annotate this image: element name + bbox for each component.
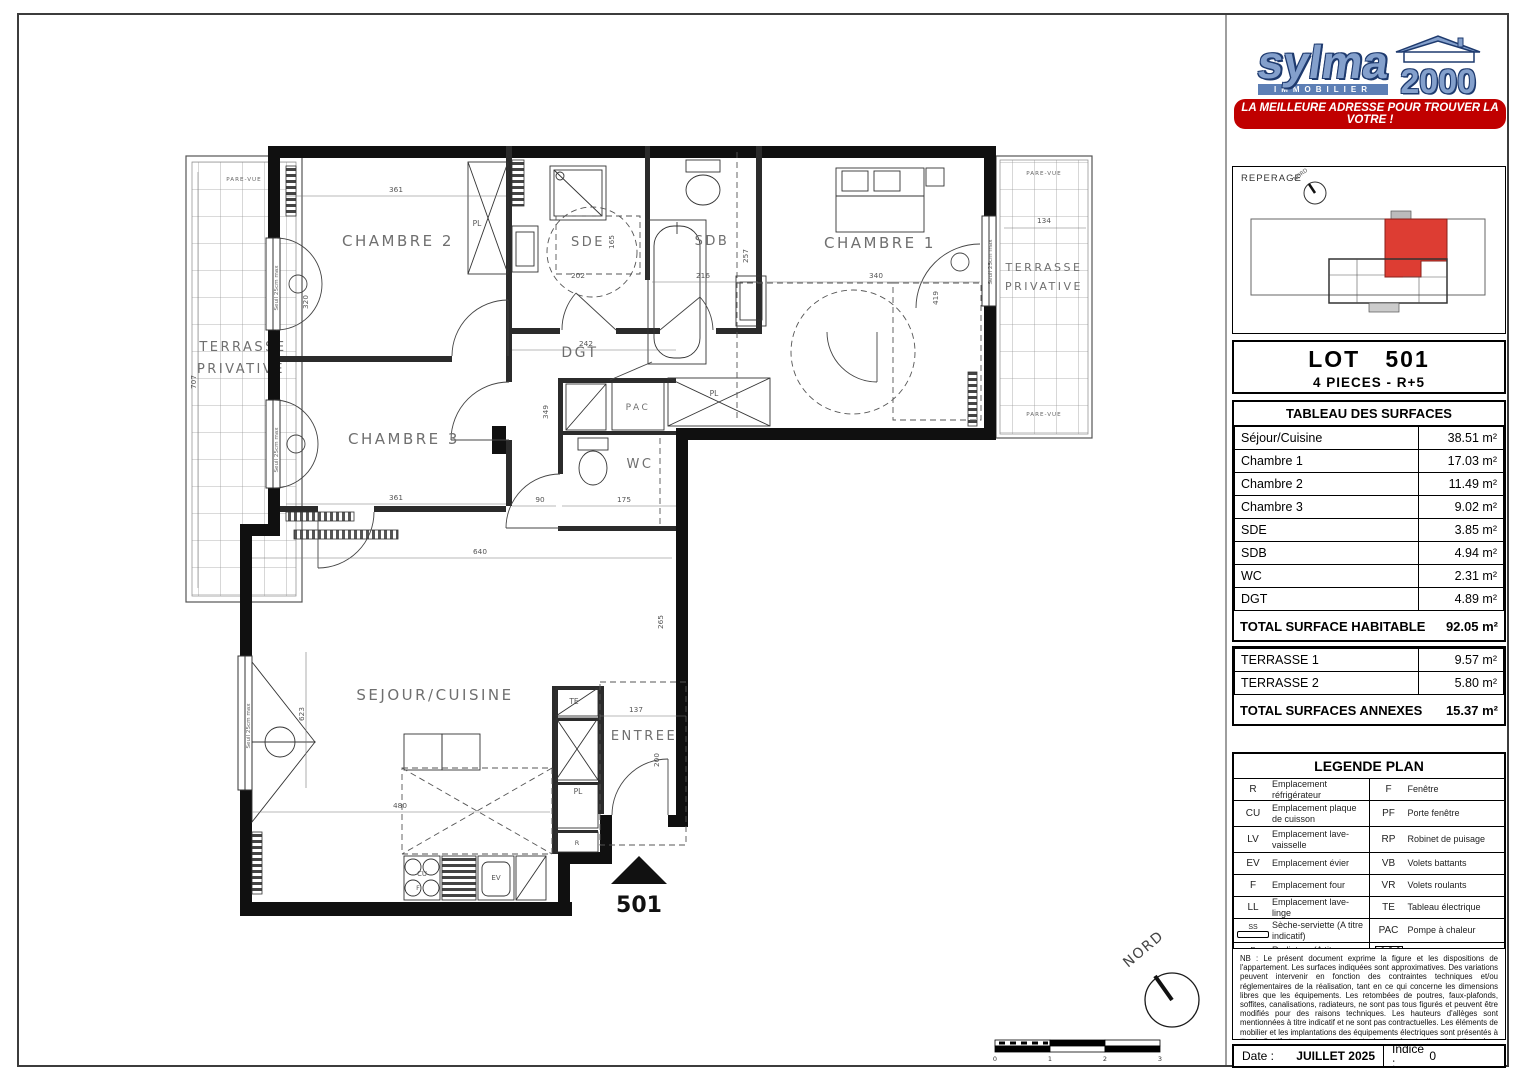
room-labels: CHAMBRE 2 SDE SDB CHAMBRE 1 CHAMBRE 3 DG…	[342, 232, 936, 744]
lot-number-marker: 501	[616, 893, 662, 918]
table-row: SDB4.94 m²	[1235, 542, 1504, 565]
fixture-labels: PL PL PL TE R CU F EV	[416, 219, 719, 892]
pl-label: PL	[473, 219, 483, 228]
table-row: Chambre 211.49 m²	[1235, 473, 1504, 496]
legend-item: SS Sèche-serviette (A titre indicatif)	[1234, 919, 1369, 943]
legend-item: VBVolets battants	[1370, 853, 1505, 875]
logo-tagline: LA MEILLEURE ADRESSE POUR TROUVER LA VOT…	[1234, 99, 1506, 129]
dim: 640	[473, 547, 487, 556]
north-compass: NORD	[1120, 928, 1199, 1027]
logo-name: sylma	[1255, 43, 1391, 81]
pare-vue-label: PARE-VUE	[1026, 171, 1061, 177]
dim: 216	[696, 271, 710, 280]
indice-label: Indice :	[1392, 1042, 1429, 1070]
surfaces-table-box: TABLEAU DES SURFACES Séjour/Cuisine38.51…	[1232, 400, 1506, 642]
nb-note-text: NB : Le présent document exprime la figu…	[1233, 949, 1505, 1040]
date-value: JUILLET 2025	[1296, 1049, 1375, 1063]
scale-tick: 2	[1103, 1055, 1107, 1063]
legend-item: RPRobinet de puisage	[1370, 827, 1505, 853]
dim: 340	[869, 271, 883, 280]
table-row: Chambre 117.03 m²	[1235, 450, 1504, 473]
seuil-notes: Seuil 25cm max Seuil 25cm max Seuil 25cm…	[246, 239, 994, 749]
house-icon	[1394, 34, 1482, 64]
room-label-pac: PAC	[626, 403, 651, 413]
dim: 361	[389, 493, 403, 502]
pl-label: PL	[710, 389, 720, 398]
legend-right-column: FFenêtre PFPorte fenêtre RPRobinet de pu…	[1370, 779, 1505, 967]
room-label-sdb: SDB	[695, 234, 730, 249]
seuil-note: Seuil 25cm max	[274, 265, 280, 311]
terrace-right-label-2: PRIVATIVE	[1005, 280, 1083, 293]
cu-label: CU	[417, 870, 427, 878]
north-label: NORD	[1120, 928, 1167, 971]
legend-item: CUEmplacement plaque de cuisson	[1234, 801, 1369, 827]
dim: 349	[541, 405, 550, 419]
pl-label: PL	[574, 787, 584, 796]
lot-box: LOT 501 4 PIECES - R+5	[1232, 340, 1506, 394]
legend-item: EVEmplacement évier	[1234, 853, 1369, 875]
table-row: TERRASSE 19.57 m²	[1235, 649, 1504, 672]
legend-item: FFenêtre	[1370, 779, 1505, 801]
room-label-chambre3: CHAMBRE 3	[348, 430, 460, 448]
logo-year: 2000	[1394, 69, 1482, 95]
pare-vue-label: PARE-VUE	[226, 177, 261, 183]
interior-walls	[280, 146, 762, 854]
scale-tick: 1	[1048, 1055, 1052, 1063]
legend-item: VRVolets roulants	[1370, 875, 1505, 897]
lot-entrance-marker: 501	[611, 856, 667, 918]
indice-cell: Indice : 0	[1384, 1046, 1504, 1066]
legend-box: LEGENDE PLAN REmplacement réfrigérateur …	[1232, 752, 1506, 969]
date-cell: Date : JUILLET 2025	[1234, 1046, 1384, 1066]
dim: 242	[579, 339, 593, 348]
total-habitable-row: TOTAL SURFACE HABITABLE 92.05 m²	[1234, 611, 1504, 640]
dim: 175	[617, 495, 631, 504]
seuil-note: Seuil 25cm max	[274, 427, 280, 473]
room-label-sejour: SEJOUR/CUISINE	[356, 686, 513, 704]
table-row: DGT4.89 m²	[1235, 588, 1504, 611]
surfaces-table: Séjour/Cuisine38.51 m² Chambre 117.03 m²…	[1234, 426, 1504, 611]
ev-label: EV	[491, 874, 500, 882]
room-label-chambre2: CHAMBRE 2	[342, 232, 454, 250]
dim: 265	[656, 615, 665, 629]
dim: 90	[535, 495, 545, 504]
indice-value: 0	[1429, 1049, 1436, 1063]
table-row: Séjour/Cuisine38.51 m²	[1235, 427, 1504, 450]
table-row: SDE3.85 m²	[1235, 519, 1504, 542]
terrace-right: PARE-VUE 134 TERRASSE PRIVATIVE PARE-VUE	[996, 156, 1092, 438]
legend-item: FEmplacement four	[1234, 875, 1369, 897]
legend-item: TETableau électrique	[1370, 897, 1505, 919]
dim: 623	[297, 707, 306, 721]
fridge-label: R	[575, 839, 580, 847]
scale-tick: 3	[1158, 1055, 1162, 1063]
dim: 419	[931, 291, 940, 305]
date-box: Date : JUILLET 2025 Indice : 0	[1232, 1044, 1506, 1068]
plan-sheet: PARE-VUE TERRASSE PRIVATIVE 707 PARE-VUE…	[0, 0, 1527, 1080]
dim-terrace2-w: 134	[1037, 216, 1051, 225]
dim: 480	[393, 801, 407, 810]
annexes-table-box: TERRASSE 19.57 m² TERRASSE 25.80 m² TOTA…	[1232, 646, 1506, 726]
annexes-table: TERRASSE 19.57 m² TERRASSE 25.80 m²	[1234, 648, 1504, 695]
room-label-entree: ENTREE	[611, 729, 677, 744]
dim: 165	[607, 235, 616, 249]
seuil-note: Seuil 25cm max	[246, 703, 252, 749]
te-label: TE	[568, 697, 579, 706]
dim: 361	[389, 185, 403, 194]
reperage-compass: NORD	[1293, 168, 1326, 204]
dim: 200	[652, 753, 661, 767]
legend-item: LVEmplacement lave-vaisselle	[1234, 827, 1369, 853]
lot-subtitle: 4 PIECES - R+5	[1234, 375, 1504, 390]
lot-title: LOT 501	[1234, 346, 1504, 373]
dim-terrace1-h: 707	[189, 375, 198, 389]
dashed-zones	[402, 152, 981, 854]
room-label-wc: WC	[627, 457, 654, 472]
pare-vue-label: PARE-VUE	[1026, 412, 1061, 418]
legend-item: PACPompe à chaleur	[1370, 919, 1505, 943]
table-row: WC2.31 m²	[1235, 565, 1504, 588]
legend-item: PFPorte fenêtre	[1370, 801, 1505, 827]
agency-logo: sylma IMMOBILIER 2000 LA MEILLEURE ADRES…	[1234, 34, 1506, 129]
reperage-box: REPERAGE NORD	[1232, 166, 1506, 334]
room-label-chambre1: CHAMBRE 1	[824, 234, 936, 252]
dim: 137	[629, 705, 643, 714]
table-row: TERRASSE 25.80 m²	[1235, 672, 1504, 695]
dim: 202	[571, 271, 585, 280]
room-label-sde: SDE	[571, 235, 605, 250]
scale-bar: 0 1 2 3	[993, 1040, 1162, 1063]
table-row: Chambre 39.02 m²	[1235, 496, 1504, 519]
scale-tick: 0	[993, 1055, 997, 1063]
dim: 257	[741, 249, 750, 263]
legend-item: REmplacement réfrigérateur	[1234, 779, 1369, 801]
dim: 320	[301, 295, 310, 309]
surfaces-title: TABLEAU DES SURFACES	[1234, 402, 1504, 426]
terrace-right-label-1: TERRASSE	[1005, 261, 1083, 274]
reperage-north-label: NORD	[1293, 168, 1310, 183]
legend-title: LEGENDE PLAN	[1234, 754, 1504, 779]
four-label: F	[416, 884, 420, 892]
legend-item: LLEmplacement lave-linge	[1234, 897, 1369, 919]
legend-left-column: REmplacement réfrigérateur CUEmplacement…	[1234, 779, 1370, 967]
towel-dryer-icon: SS	[1234, 924, 1272, 938]
date-label: Date :	[1242, 1049, 1274, 1063]
seuil-note: Seuil 25cm max	[988, 239, 994, 285]
nb-note-box: NB : Le présent document exprime la figu…	[1232, 948, 1506, 1040]
reperage-map: NORD	[1233, 167, 1503, 331]
total-annexes-row: TOTAL SURFACES ANNEXES 15.37 m²	[1234, 695, 1504, 724]
dimension-lines	[252, 196, 980, 812]
